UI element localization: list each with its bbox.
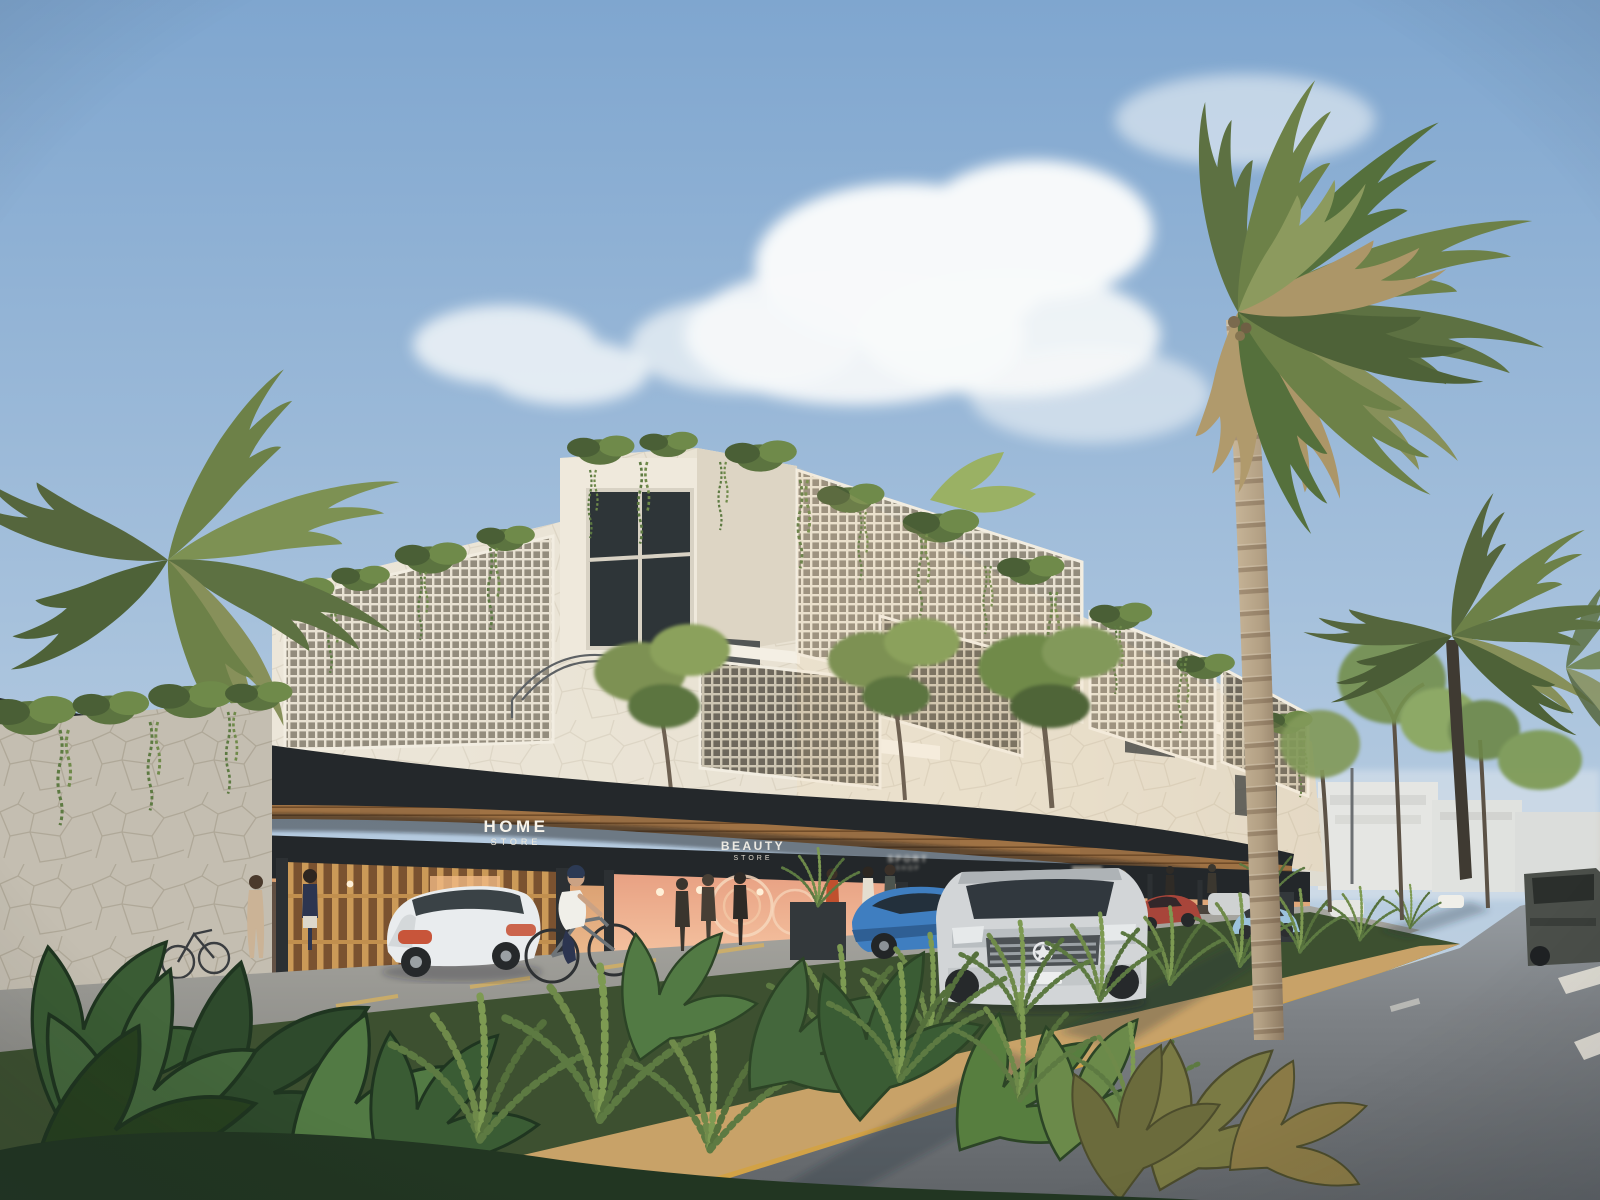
vignette	[0, 0, 1600, 1200]
rendering-scene: HOME STORE BEAUTY STORE SPORT SHOP	[0, 0, 1600, 1200]
scene-canvas: HOME STORE BEAUTY STORE SPORT SHOP	[0, 0, 1600, 1200]
